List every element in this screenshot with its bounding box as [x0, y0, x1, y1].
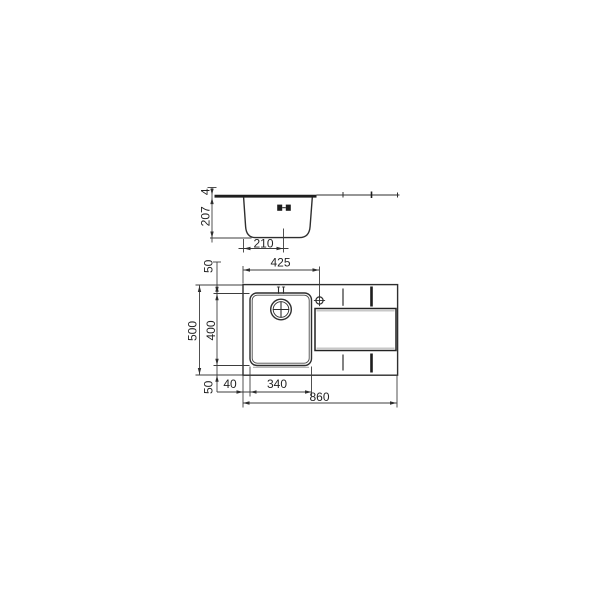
plan-bowl-width-label: 340: [267, 377, 287, 391]
section-rim-thickness-label: 4: [198, 188, 212, 195]
tap-hole-icon: [314, 295, 325, 306]
groove-marks: [343, 287, 372, 373]
arrow-210-left: [244, 247, 251, 250]
plan-overall-depth-label: 500: [185, 321, 199, 341]
plan-tap-offset-label: 425: [270, 255, 290, 269]
arrow-210-right: [277, 247, 284, 250]
section-bowl-profile: [244, 197, 313, 237]
sink-technical-drawing: 207 4 210: [0, 0, 600, 600]
section-depth-label: 207: [198, 206, 212, 226]
plan-sink-outline: [243, 285, 398, 376]
plan-overall-width-label: 860: [309, 390, 329, 404]
waste-drain-icon: [271, 299, 292, 320]
section-view: 207 4 210: [198, 188, 399, 253]
technical-drawing-page: 207 4 210: [0, 0, 600, 600]
plan-bowl-depth-label: 400: [204, 320, 218, 340]
plan-front-margin-label: 50: [201, 380, 215, 394]
plan-side-margin-label: 40: [223, 377, 237, 391]
arrow-depth-top: [210, 198, 213, 205]
drainboard-tray: [315, 309, 396, 351]
section-drain-offset-label: 210: [253, 237, 273, 251]
plan-view: 425 50 500 400 50 40 340 860: [185, 255, 397, 407]
drain-outlet-icon: [277, 205, 291, 211]
plan-rear-margin-label: 50: [201, 259, 215, 273]
arrow-depth-bottom: [210, 232, 213, 239]
